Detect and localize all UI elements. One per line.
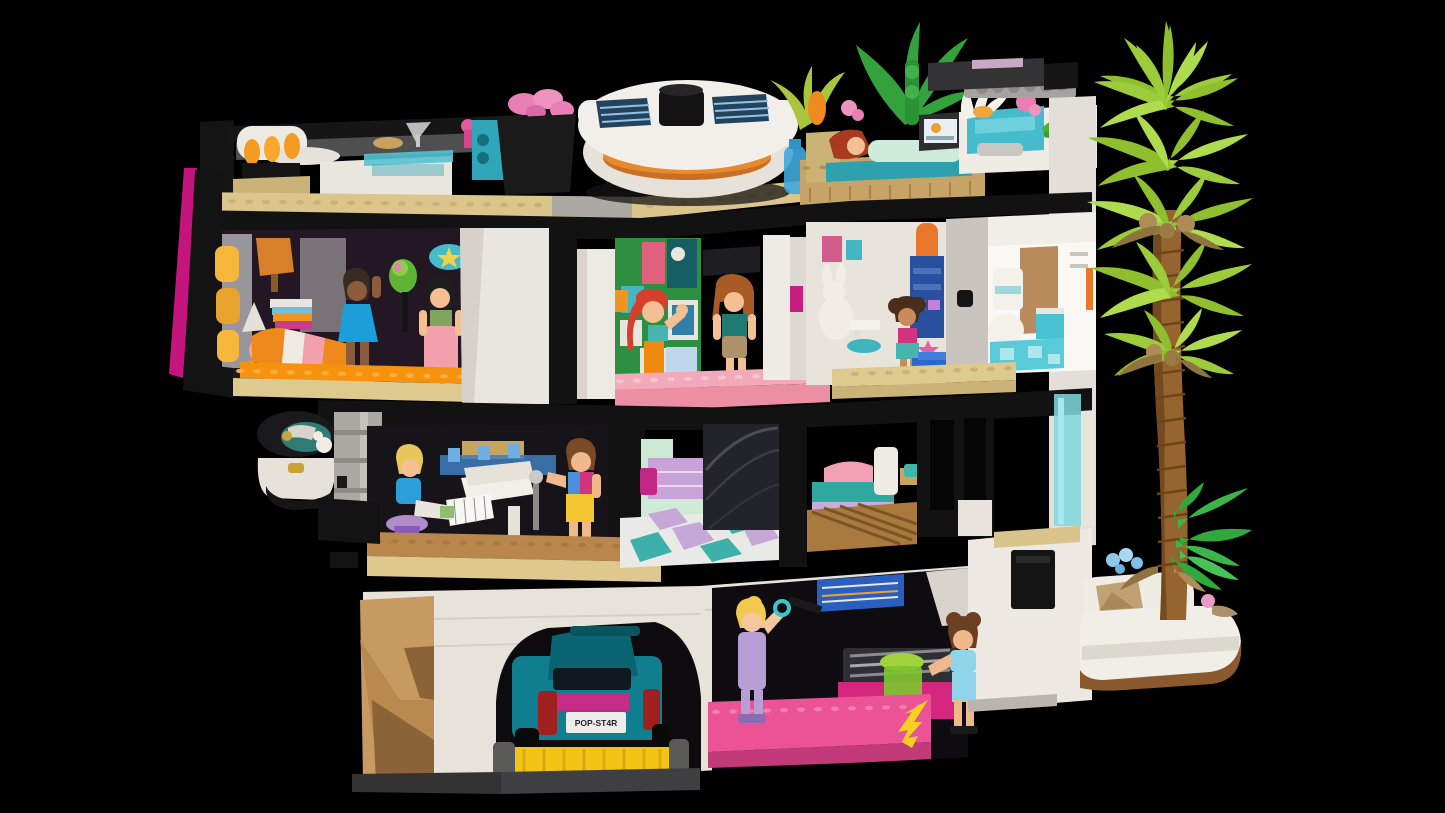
svg-text:POP-ST4R: POP-ST4R bbox=[575, 718, 618, 728]
